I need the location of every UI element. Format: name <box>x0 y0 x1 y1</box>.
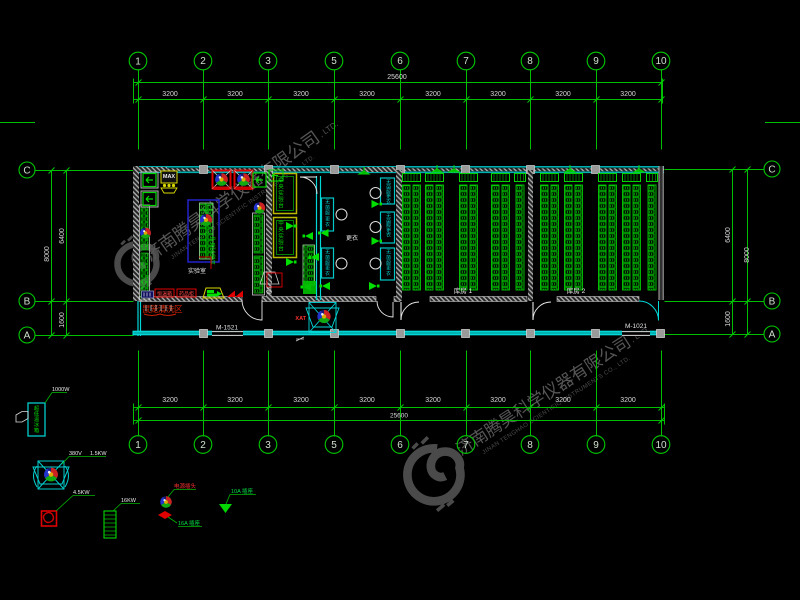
svg-text:3200: 3200 <box>490 397 506 404</box>
svg-text:8000: 8000 <box>744 247 751 263</box>
svg-text:3200: 3200 <box>162 91 178 98</box>
svg-text:C: C <box>768 165 775 176</box>
svg-text:无: 无 <box>386 250 391 256</box>
svg-text:10: 10 <box>655 440 667 451</box>
svg-text:恒温箱: 恒温箱 <box>157 291 172 298</box>
svg-text:验: 验 <box>278 238 284 246</box>
svg-text:3200: 3200 <box>620 91 636 98</box>
svg-text:更: 更 <box>325 216 330 222</box>
svg-text:7: 7 <box>463 56 469 67</box>
svg-text:台: 台 <box>278 245 284 253</box>
svg-text:央: 央 <box>278 182 284 190</box>
svg-text:10: 10 <box>655 56 667 67</box>
svg-text:更: 更 <box>386 266 391 272</box>
svg-text:库房 1: 库房 1 <box>454 286 473 295</box>
svg-text:3: 3 <box>265 440 271 451</box>
svg-text:M-1021: M-1021 <box>625 323 647 330</box>
svg-text:菌: 菌 <box>325 254 330 261</box>
svg-text:XAT: XAT <box>295 316 306 322</box>
svg-text:3200: 3200 <box>227 91 243 98</box>
svg-text:箱: 箱 <box>34 426 39 434</box>
svg-text:9: 9 <box>593 440 599 451</box>
svg-text:库房 2: 库房 2 <box>567 286 586 295</box>
svg-text:3200: 3200 <box>359 397 375 404</box>
svg-text:8: 8 <box>527 440 533 451</box>
svg-text:菌: 菌 <box>386 254 391 261</box>
svg-text:1600: 1600 <box>725 311 732 327</box>
svg-text:25600: 25600 <box>387 74 407 81</box>
svg-text:衣: 衣 <box>386 198 391 205</box>
svg-text:7: 7 <box>463 440 469 451</box>
svg-text:衣: 衣 <box>325 221 330 228</box>
svg-text:无: 无 <box>325 250 330 256</box>
svg-text:更衣: 更衣 <box>346 234 358 242</box>
svg-text:A: A <box>24 331 31 342</box>
svg-text:B: B <box>24 297 31 308</box>
svg-text:台: 台 <box>278 202 284 210</box>
svg-text:服: 服 <box>325 211 330 217</box>
svg-text:实: 实 <box>210 247 216 255</box>
svg-text:1: 1 <box>135 57 141 68</box>
svg-text:2: 2 <box>200 56 206 67</box>
svg-text:3200: 3200 <box>555 397 571 404</box>
svg-text:3200: 3200 <box>359 91 375 98</box>
svg-text:鼠笼清洗区: 鼠笼清洗区 <box>142 304 183 314</box>
svg-text:服: 服 <box>386 260 391 266</box>
svg-text:3200: 3200 <box>227 397 243 404</box>
svg-text:3200: 3200 <box>555 91 571 98</box>
svg-text:衣: 衣 <box>386 232 391 239</box>
svg-text:9: 9 <box>593 56 599 67</box>
svg-text:5: 5 <box>331 56 337 67</box>
svg-text:25600: 25600 <box>390 413 408 420</box>
svg-text:3200: 3200 <box>490 91 506 98</box>
svg-text:3200: 3200 <box>425 397 441 404</box>
svg-text:1600: 1600 <box>59 312 66 328</box>
svg-text:药品柜: 药品柜 <box>179 291 194 298</box>
svg-text:8000: 8000 <box>44 246 51 262</box>
svg-text:衣: 衣 <box>386 270 391 277</box>
svg-text:3200: 3200 <box>162 397 178 404</box>
svg-text:实验室: 实验室 <box>188 267 206 275</box>
svg-text:3200: 3200 <box>425 91 441 98</box>
svg-text:A: A <box>769 330 776 341</box>
svg-text:无: 无 <box>325 200 330 206</box>
svg-text:3200: 3200 <box>293 397 309 404</box>
svg-text:3200: 3200 <box>620 397 636 404</box>
svg-text:MAX: MAX <box>163 174 176 180</box>
svg-text:央: 央 <box>210 241 216 249</box>
svg-text:6400: 6400 <box>725 227 732 243</box>
svg-text:M-1521: M-1521 <box>216 325 238 332</box>
svg-text:10A 插座: 10A 插座 <box>231 487 254 495</box>
svg-text:3200: 3200 <box>293 91 309 98</box>
svg-text:菌: 菌 <box>325 204 330 211</box>
svg-text:B: B <box>769 297 776 308</box>
svg-text:1: 1 <box>135 440 141 451</box>
svg-text:央: 央 <box>278 225 284 233</box>
svg-text:验: 验 <box>278 195 284 203</box>
svg-text:5: 5 <box>331 440 337 451</box>
svg-text:中: 中 <box>278 219 284 227</box>
svg-text:3: 3 <box>265 56 271 67</box>
svg-text:6: 6 <box>397 440 403 451</box>
svg-text:衣: 衣 <box>325 270 330 277</box>
svg-text:16A 插座: 16A 插座 <box>178 519 201 527</box>
svg-text:实: 实 <box>278 189 284 197</box>
svg-text:更: 更 <box>325 266 330 272</box>
svg-text:中: 中 <box>210 235 216 243</box>
svg-text:服: 服 <box>325 260 330 266</box>
svg-text:电源插头: 电源插头 <box>174 482 197 490</box>
svg-text:8: 8 <box>527 56 533 67</box>
svg-text:C: C <box>23 166 30 177</box>
svg-text:6: 6 <box>397 56 403 67</box>
svg-text:MS: MS <box>267 286 273 294</box>
svg-text:2: 2 <box>200 440 206 451</box>
svg-text:实: 实 <box>278 232 284 240</box>
svg-text:6400: 6400 <box>59 228 66 244</box>
